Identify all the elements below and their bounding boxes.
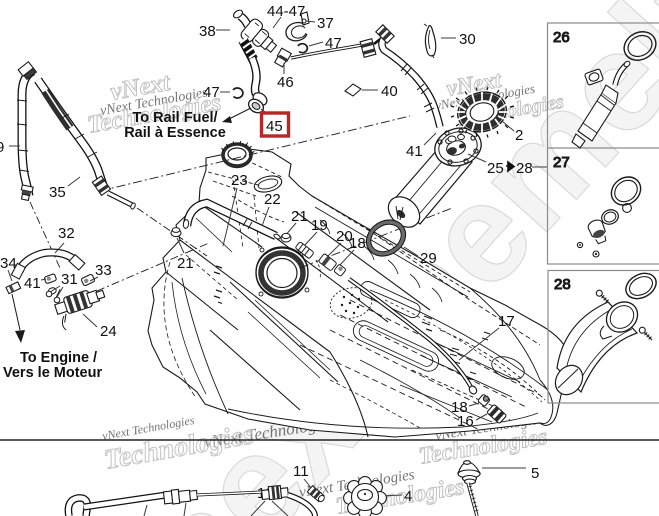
svg-text:5: 5 xyxy=(531,465,539,482)
svg-text:34: 34 xyxy=(0,255,17,272)
svg-text:41: 41 xyxy=(24,275,41,292)
svg-text:47: 47 xyxy=(203,84,220,101)
svg-text:41: 41 xyxy=(406,143,423,160)
svg-text:16: 16 xyxy=(457,413,474,430)
svg-text:19: 19 xyxy=(311,217,328,234)
svg-text:4: 4 xyxy=(404,488,412,505)
svg-text:22: 22 xyxy=(264,191,281,208)
svg-text:21: 21 xyxy=(291,208,308,225)
svg-text:37: 37 xyxy=(317,15,334,32)
svg-text:28: 28 xyxy=(516,160,533,177)
svg-text:31: 31 xyxy=(61,271,78,288)
svg-text:40: 40 xyxy=(381,83,398,100)
svg-text:47: 47 xyxy=(325,35,342,52)
svg-text:45: 45 xyxy=(266,118,283,135)
svg-text:26: 26 xyxy=(553,29,570,46)
svg-text:30: 30 xyxy=(459,31,476,48)
svg-text:25: 25 xyxy=(487,160,504,177)
svg-text:46: 46 xyxy=(277,74,294,91)
svg-text:24: 24 xyxy=(100,323,117,340)
svg-text:28: 28 xyxy=(554,276,571,293)
svg-text:9: 9 xyxy=(0,139,4,156)
svg-text:27: 27 xyxy=(553,154,570,171)
svg-text:23: 23 xyxy=(231,172,248,189)
svg-text:44-47: 44-47 xyxy=(267,3,305,20)
svg-text:2: 2 xyxy=(515,127,523,144)
svg-text:Vers le Moteur: Vers le Moteur xyxy=(3,365,102,381)
svg-text:To Rail Fuel/: To Rail Fuel/ xyxy=(132,110,217,126)
svg-text:21: 21 xyxy=(177,255,194,272)
svg-text:To Engine /: To Engine / xyxy=(20,350,97,366)
svg-text:Rail à Essence: Rail à Essence xyxy=(124,125,226,141)
svg-text:32: 32 xyxy=(58,225,75,242)
svg-text:35: 35 xyxy=(49,184,66,201)
svg-text:38: 38 xyxy=(199,23,216,40)
svg-text:33: 33 xyxy=(95,262,112,279)
svg-text:17: 17 xyxy=(498,313,515,330)
svg-text:11: 11 xyxy=(293,463,309,480)
svg-text:18: 18 xyxy=(349,235,366,252)
svg-text:29: 29 xyxy=(420,250,437,267)
